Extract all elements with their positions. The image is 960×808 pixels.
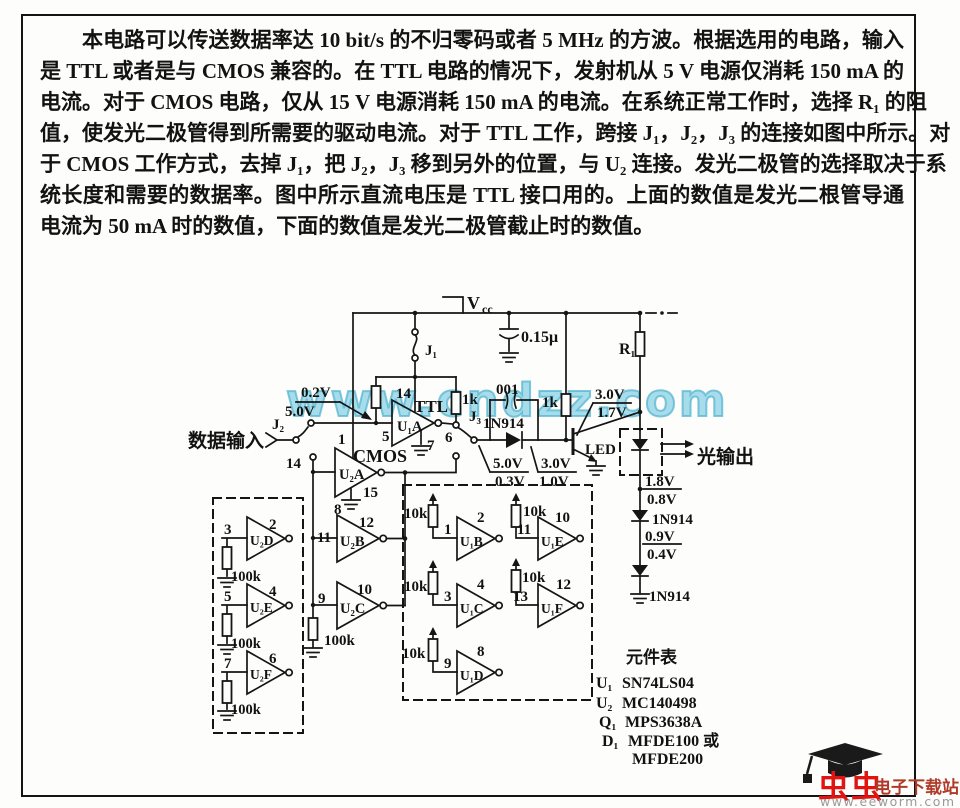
pin-11: 11 — [317, 530, 331, 546]
u1b-label: U₁B — [460, 534, 483, 549]
pin-6: 6 — [445, 430, 453, 446]
r-100k-label: 100k — [231, 702, 262, 718]
pin-4: 4 — [477, 577, 485, 593]
vcc-label: V — [467, 293, 480, 313]
part-value: MPS3638A — [625, 714, 703, 731]
u2c-label: U₂C — [340, 601, 365, 617]
pin-4: 4 — [269, 584, 277, 600]
pin-8: 8 — [477, 644, 485, 660]
pin-1: 1 — [444, 522, 452, 538]
pin-8: 8 — [334, 502, 342, 518]
parts-list-title: 元件表 — [626, 647, 678, 667]
part-ref: U₁ — [596, 675, 613, 692]
part-value: SN74LS04 — [622, 675, 694, 692]
r-1k-label: 1k — [462, 392, 479, 408]
part-ref: U₂ — [596, 695, 613, 712]
v-1p8: 1.8V — [645, 474, 675, 490]
pin-9: 9 — [444, 656, 452, 672]
voltage-flag-input: 0.2V 5.0V — [285, 385, 372, 420]
j1-label: J₁ — [425, 343, 437, 359]
data-input-label: 数据输入 — [188, 429, 264, 452]
part-value: MFDE100 或 — [628, 731, 719, 750]
pin-1: 1 — [338, 432, 346, 448]
pin-14: 14 — [396, 386, 412, 402]
pin-7: 7 — [427, 438, 435, 454]
u1d-label: U₁D — [460, 668, 484, 683]
r-10k-label: 10k — [404, 506, 428, 522]
u2a-label: U₂A — [339, 467, 365, 483]
v-0p3: 0.3V — [495, 474, 525, 490]
led-label: LED — [585, 442, 616, 458]
data-input-terminal: 数据输入 J₂ — [188, 417, 314, 452]
u2f-label: U₂F — [250, 667, 272, 682]
pin-13: 13 — [513, 589, 528, 605]
r-100k-label: 100k — [231, 569, 262, 585]
v-0p2: 0.2V — [301, 385, 331, 401]
r-10k-label: 10k — [404, 579, 428, 595]
v-5p0: 5.0V — [493, 456, 523, 472]
pin-2: 2 — [269, 517, 277, 533]
part-value: MFDE200 — [632, 751, 703, 768]
vcc-rail: V cc — [353, 293, 677, 316]
pin-6: 6 — [269, 651, 277, 667]
unused-ttl-gates-box: 10k 1 U₁B 2 10k 11 U₁E 10 10k 3 U₁C 4 — [402, 485, 592, 700]
pin-14: 14 — [286, 456, 302, 472]
part-ref: D₁ — [602, 733, 619, 750]
led-output-chain: 光输出 1.8V 0.8V 1N914 0.9V 0.4V 1N914 — [620, 429, 754, 605]
cmos-label: CMOS — [353, 446, 407, 466]
v-0p4: 0.4V — [647, 547, 677, 563]
j2-label: J₂ — [272, 417, 285, 433]
u2b-label: U₂B — [340, 534, 365, 550]
pin-11: 11 — [517, 522, 531, 538]
r-100k-label: 100k — [324, 633, 356, 649]
u1c-label: U₁C — [460, 601, 484, 616]
v-0p8: 0.8V — [647, 492, 677, 508]
capacitor-value: 0.15μ — [521, 329, 558, 346]
capacitor-0.15u: 0.15μ — [500, 313, 558, 362]
jumper-j1: J₁ — [412, 313, 437, 377]
pin-10: 10 — [555, 510, 570, 526]
pin-5: 5 — [224, 589, 232, 605]
v-1p0: 1.0V — [539, 474, 569, 490]
part-value: MC140498 — [622, 695, 697, 712]
site-url-text: www.eeworm.com — [820, 794, 956, 808]
u1a-label: U₁A — [397, 419, 423, 435]
part-ref: Q₁ — [599, 714, 616, 731]
v-5p0: 5.0V — [285, 404, 315, 420]
ttl-label: TTL — [414, 397, 448, 416]
circuit-schematic: V cc J₁ 0.15μ R₁ — [0, 0, 960, 808]
diode-1n914-label: 1N914 — [652, 512, 693, 528]
u1e-label: U₁E — [541, 534, 564, 549]
r-10k-label: 10k — [523, 504, 547, 520]
pin-7: 7 — [224, 656, 232, 672]
pin-12: 12 — [556, 577, 571, 593]
v-0p9: 0.9V — [645, 529, 675, 545]
u2d-label: U₂D — [250, 533, 274, 548]
u1f-label: U₁F — [541, 601, 563, 616]
pin-10: 10 — [357, 582, 372, 598]
eeworm-logo: 虫虫 电子下载站 www.eeworm.com — [795, 733, 960, 808]
cap-001-label: 001 — [496, 382, 519, 398]
r-1k-label: 1k — [542, 395, 559, 411]
scanned-document-page: 本电路可以传送数据率达 10 bit/s 的不归零码或者 5 MHz 的方波。根… — [0, 0, 960, 808]
r-10k-label: 10k — [522, 570, 546, 586]
parts-list: 元件表 U₁ SN74LS04 U₂ MC140498 Q₁ MPS3638A … — [596, 647, 719, 768]
pin-3: 3 — [444, 589, 452, 605]
diode-1n914-label: 1N914 — [483, 416, 524, 432]
v-3p0: 3.0V — [541, 456, 571, 472]
vcc-sub-label: cc — [482, 302, 493, 316]
pin-2: 2 — [477, 510, 485, 526]
r1-label: R₁ — [619, 341, 636, 358]
u2e-label: U₂E — [250, 600, 273, 615]
r-10k-label: 10k — [402, 646, 426, 662]
diode-1n914-label: 1N914 — [649, 589, 690, 605]
light-output-label: 光输出 — [696, 445, 754, 468]
j3-label: J₃ — [469, 409, 482, 425]
pin-9: 9 — [318, 591, 326, 607]
pin-15: 15 — [363, 485, 378, 501]
unused-cmos-gates-box: 3 2 U₂D 100k 5 4 U₂E 100k 7 6 U₂F 100k — [213, 498, 303, 733]
pin-3: 3 — [224, 522, 232, 538]
r-100k-label: 100k — [231, 636, 262, 652]
v-3p0: 3.0V — [595, 387, 625, 403]
pin-12: 12 — [359, 515, 374, 531]
pin-5: 5 — [382, 429, 390, 445]
